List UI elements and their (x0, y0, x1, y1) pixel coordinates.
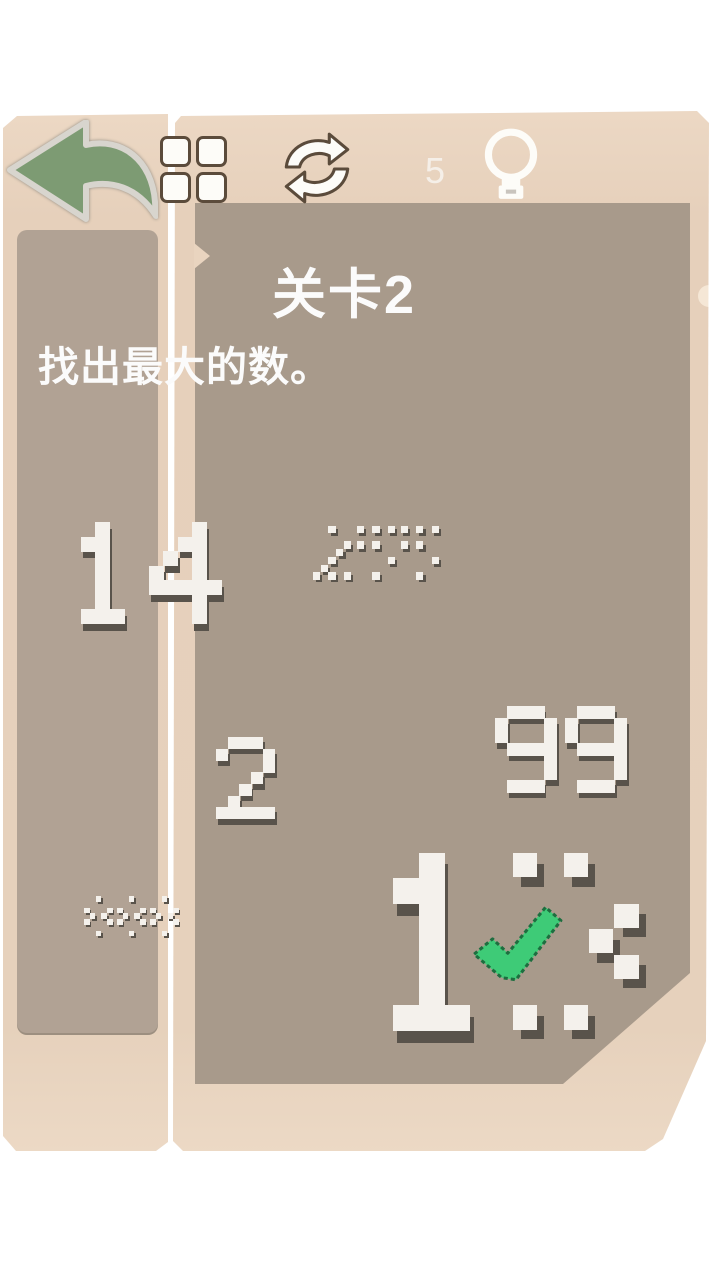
hint-count: 5 (420, 150, 450, 192)
back-arrow-icon (6, 120, 158, 224)
number-tile-255[interactable] (313, 526, 439, 584)
number-tile-99[interactable] (495, 706, 627, 798)
number-tile-14[interactable] (66, 522, 221, 631)
panel-edge-notch (698, 285, 712, 307)
hint-button[interactable] (478, 126, 544, 206)
restart-button[interactable] (274, 132, 360, 204)
levels-grid-button[interactable] (160, 136, 235, 203)
grid-menu-icon (160, 172, 191, 203)
number-tile-888[interactable] (84, 896, 179, 940)
game-screen: 5 关卡2 找出最大的数。 (0, 0, 712, 1272)
level-instruction: 找出最大的数。 (38, 333, 332, 393)
level-title: 关卡2 (272, 250, 416, 329)
number-tile-2[interactable] (216, 737, 275, 825)
lightbulb-icon (478, 126, 544, 206)
back-button[interactable] (6, 120, 158, 224)
grid-menu-icon (160, 136, 191, 167)
grid-menu-icon (196, 172, 227, 203)
checkmark-icon (466, 901, 568, 985)
refresh-icon (274, 132, 360, 204)
grid-menu-icon (196, 136, 227, 167)
board-left-notch (194, 243, 210, 269)
sidebar-panel (3, 114, 168, 1152)
